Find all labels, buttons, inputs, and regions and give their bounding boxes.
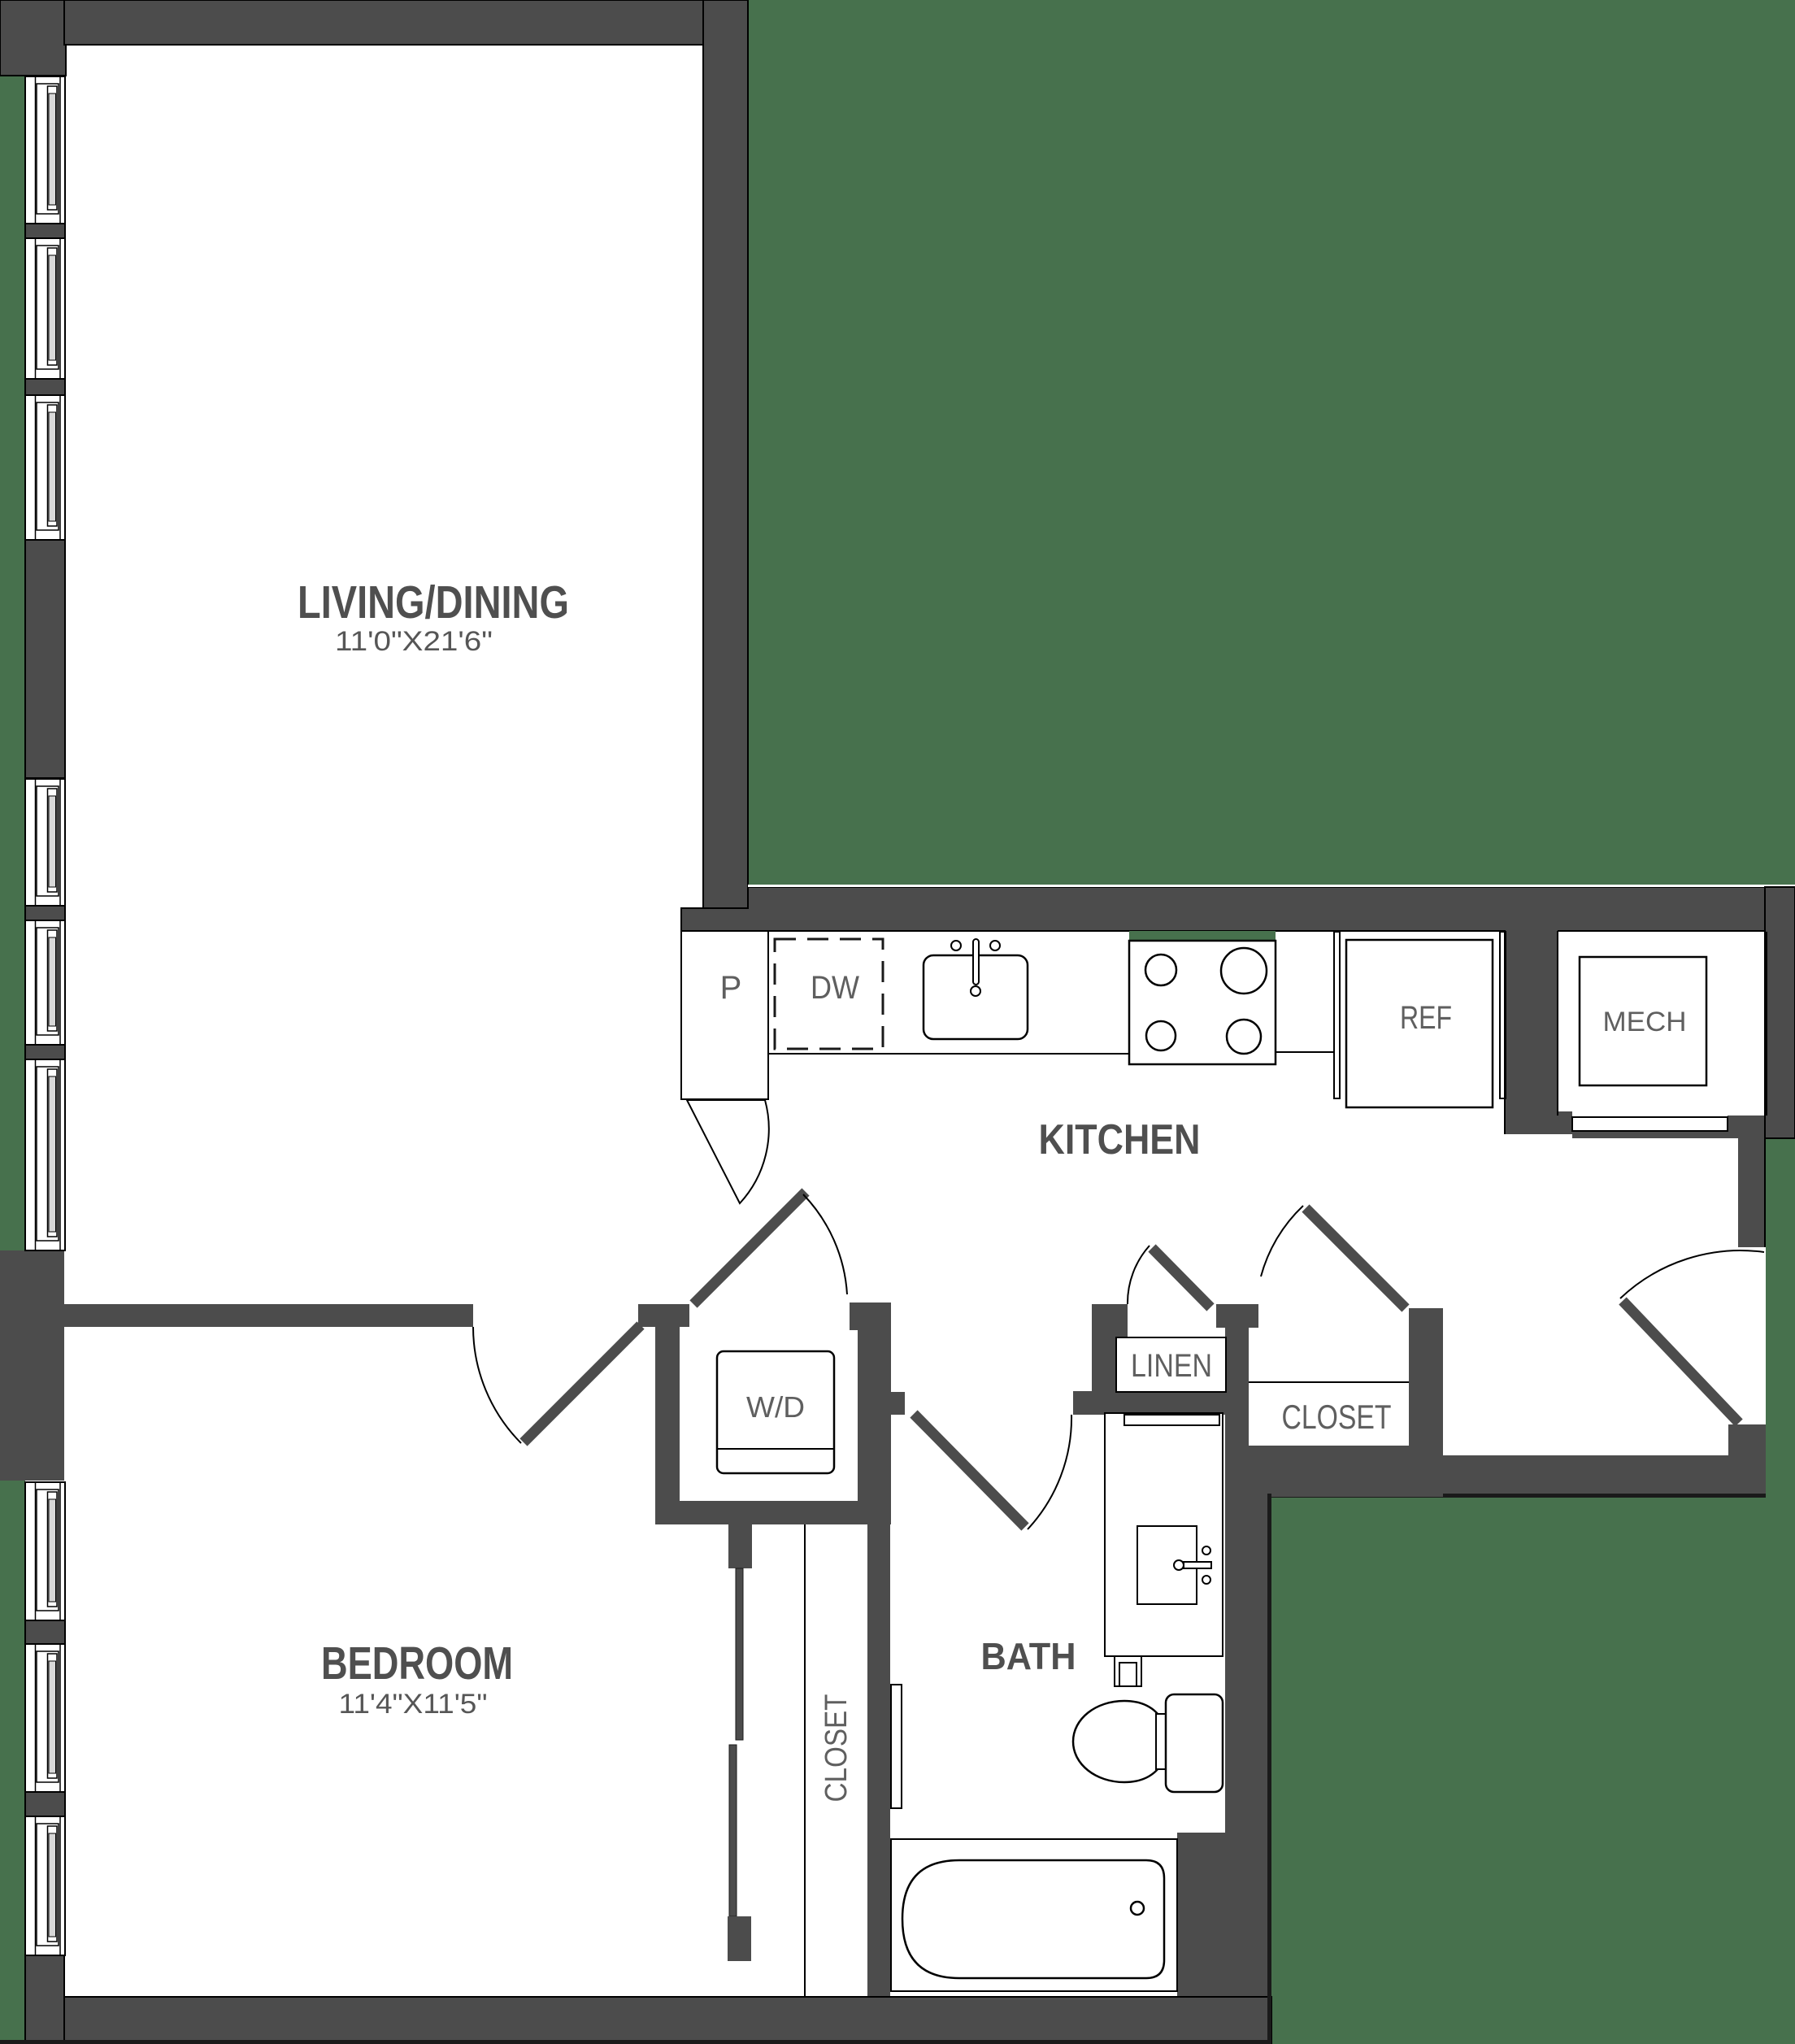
svg-text:W/D: W/D [746, 1390, 805, 1424]
svg-text:CLOSET: CLOSET [1282, 1398, 1392, 1436]
svg-text:LINEN: LINEN [1131, 1348, 1212, 1384]
svg-text:BEDROOM: BEDROOM [321, 1637, 513, 1690]
svg-text:P: P [720, 970, 742, 1006]
svg-text:LIVING/DINING: LIVING/DINING [298, 576, 569, 628]
svg-text:CLOSET: CLOSET [819, 1694, 854, 1803]
svg-text:11'4"X11'5": 11'4"X11'5" [339, 1689, 488, 1720]
svg-text:BATH: BATH [981, 1635, 1076, 1677]
svg-text:DW: DW [811, 970, 859, 1006]
svg-text:11'0"X21'6": 11'0"X21'6" [335, 626, 493, 657]
svg-text:MECH: MECH [1603, 1007, 1687, 1037]
svg-text:KITCHEN: KITCHEN [1039, 1116, 1201, 1163]
svg-text:REF: REF [1400, 1000, 1452, 1036]
